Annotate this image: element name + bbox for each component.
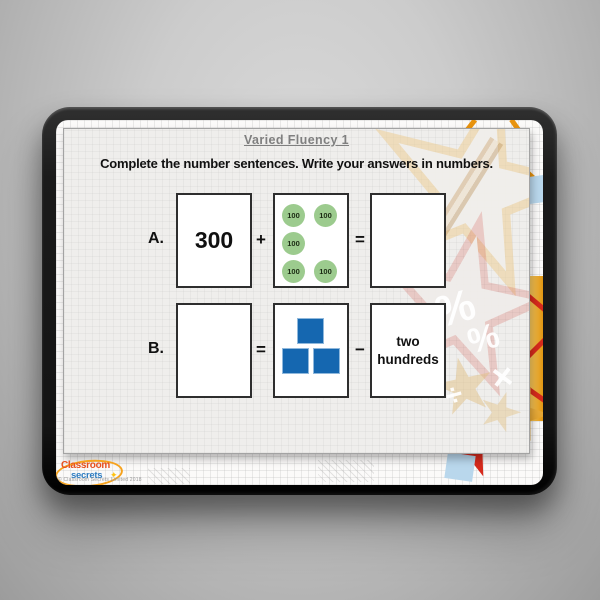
background: % % × ÷ Varied Fluency 1 Complete the nu… [0,0,600,600]
hundred-block [282,348,309,374]
counter-100: 100 [314,260,337,283]
plus-operator: + [248,230,274,250]
slide-content: % % × ÷ Varied Fluency 1 Complete the nu… [63,128,530,454]
counter-100: 100 [282,232,305,255]
row-a-answer-box[interactable] [370,193,446,288]
tan-star-decoration [474,386,527,439]
blue-square-decoration [444,452,475,482]
row-b-blocks-box [273,303,349,398]
copyright-text: © Classroom Secrets Limited 2018 [58,477,142,483]
row-a-addend-box: 300 [176,193,252,288]
counter-100: 100 [314,204,337,227]
counter-100: 100 [282,204,305,227]
subtrahend-words: two hundreds [372,333,444,368]
addend-value: 300 [195,227,233,254]
row-a-label: A. [130,230,164,248]
slide-title: Varied Fluency 1 [64,133,529,147]
hundred-block [297,318,324,344]
row-b-label: B. [130,340,164,358]
hundred-block [313,348,340,374]
percent-symbol-decoration: % [464,317,504,359]
row-a-counters-box: 100 100 100 100 100 [273,193,349,288]
slide-frame: % % × ÷ Varied Fluency 1 Complete the nu… [42,107,557,495]
base-ten-blocks [275,305,347,396]
ruler-sketch-decoration [148,468,190,484]
multiply-symbol-decoration: × [490,358,516,397]
counter-100: 100 [282,260,305,283]
instruction-text: Complete the number sentences. Write you… [64,156,529,171]
equals-operator: = [248,340,274,360]
slide: % % × ÷ Varied Fluency 1 Complete the nu… [56,120,543,485]
ruler-sketch-decoration [318,460,374,482]
row-b-subtrahend-box: two hundreds [370,303,446,398]
row-b-answer-box[interactable] [176,303,252,398]
place-value-counters: 100 100 100 100 100 [275,195,347,286]
